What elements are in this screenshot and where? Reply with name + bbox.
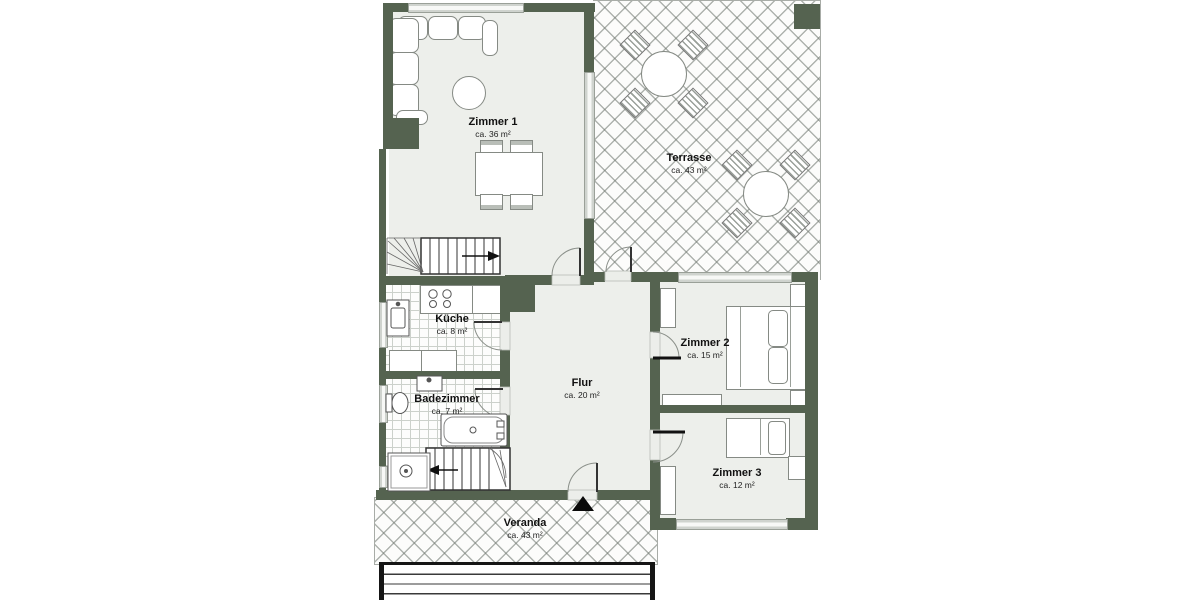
bed-fold-line [760, 419, 761, 455]
wall-segment [584, 3, 594, 73]
nightstand [788, 456, 806, 480]
room-name: Badezimmer [414, 393, 479, 406]
window [676, 519, 788, 530]
room-area: ca. 15 m² [681, 350, 730, 360]
wall-segment [592, 272, 605, 282]
room-label-zimmer1: Zimmer 1 ca. 36 m² [469, 116, 518, 139]
sofa-cushion [389, 52, 419, 85]
room-name: Terrasse [666, 152, 711, 165]
pillow [768, 347, 788, 384]
room-label-badezimmer: Badezimmer ca. 7 m² [414, 393, 479, 416]
exterior-steps [379, 562, 655, 600]
wall-segment [790, 272, 818, 282]
wall-segment [500, 379, 510, 387]
sofa-armrest [482, 20, 498, 56]
window [408, 3, 524, 13]
pillow [768, 310, 788, 347]
room-label-zimmer2: Zimmer 2 ca. 15 m² [681, 337, 730, 360]
room-area: ca. 20 m² [564, 390, 599, 400]
room-label-veranda: Veranda ca. 43 m² [504, 517, 547, 540]
room-area: ca. 43 m² [504, 530, 547, 540]
bed-headboard-line [790, 307, 791, 387]
room-name: Flur [564, 377, 599, 390]
room-name: Küche [435, 313, 469, 326]
room-name: Zimmer 3 [713, 467, 762, 480]
wall-segment [650, 405, 818, 413]
floor-plan-canvas: Zimmer 1 ca. 36 m² Terrasse ca. 43 m² Kü… [0, 0, 1200, 600]
terrace-corner-block [794, 4, 820, 29]
dining-chair [480, 194, 503, 210]
wall-segment [650, 358, 660, 412]
window [678, 272, 792, 283]
wardrobe [660, 466, 676, 515]
terrace-table [743, 171, 789, 217]
room-area: ca. 36 m² [469, 129, 518, 139]
double-bed [726, 306, 807, 390]
wall-segment [805, 272, 818, 530]
wall-pillar [383, 118, 419, 149]
wall-segment [631, 272, 678, 282]
room-area: ca. 43 m² [666, 165, 711, 175]
wall-segment [376, 490, 568, 500]
dining-chair [510, 194, 533, 210]
room-label-terrasse: Terrasse ca. 43 m² [666, 152, 711, 175]
room-area: ca. 8 m² [435, 326, 469, 336]
wall-segment [379, 371, 510, 379]
room-label-flur: Flur ca. 20 m² [564, 377, 599, 400]
room-area: ca. 12 m² [713, 480, 762, 490]
room-name: Veranda [504, 517, 547, 530]
wall-segment [379, 276, 510, 285]
wall-segment [650, 282, 660, 332]
sofa-cushion [428, 16, 458, 40]
sofa-corner-cushion [389, 18, 419, 53]
wall-segment [584, 217, 594, 280]
kitchen-stove [420, 285, 474, 314]
dining-table [475, 152, 543, 196]
wall-segment [500, 350, 510, 373]
room-name: Zimmer 1 [469, 116, 518, 129]
wall-segment [786, 518, 818, 530]
room-name: Zimmer 2 [681, 337, 730, 350]
wardrobe [660, 288, 676, 328]
wall-segment [500, 415, 510, 492]
pillow [768, 421, 786, 455]
terrace-table [641, 51, 687, 97]
wall-segment [650, 518, 676, 530]
wall-segment [500, 285, 510, 322]
side-table [452, 76, 486, 110]
glass-door [584, 72, 595, 219]
window [379, 302, 388, 348]
kitchen-counter [472, 285, 502, 314]
window [379, 385, 388, 423]
room-label-kueche: Küche ca. 8 m² [435, 313, 469, 336]
wall-segment [650, 413, 660, 430]
wall-segment [505, 275, 552, 285]
room-area: ca. 7 m² [414, 406, 479, 416]
bed-fold-line [740, 307, 741, 387]
room-label-zimmer3: Zimmer 3 ca. 12 m² [713, 467, 762, 490]
wall-segment [379, 149, 386, 285]
window [379, 466, 388, 488]
